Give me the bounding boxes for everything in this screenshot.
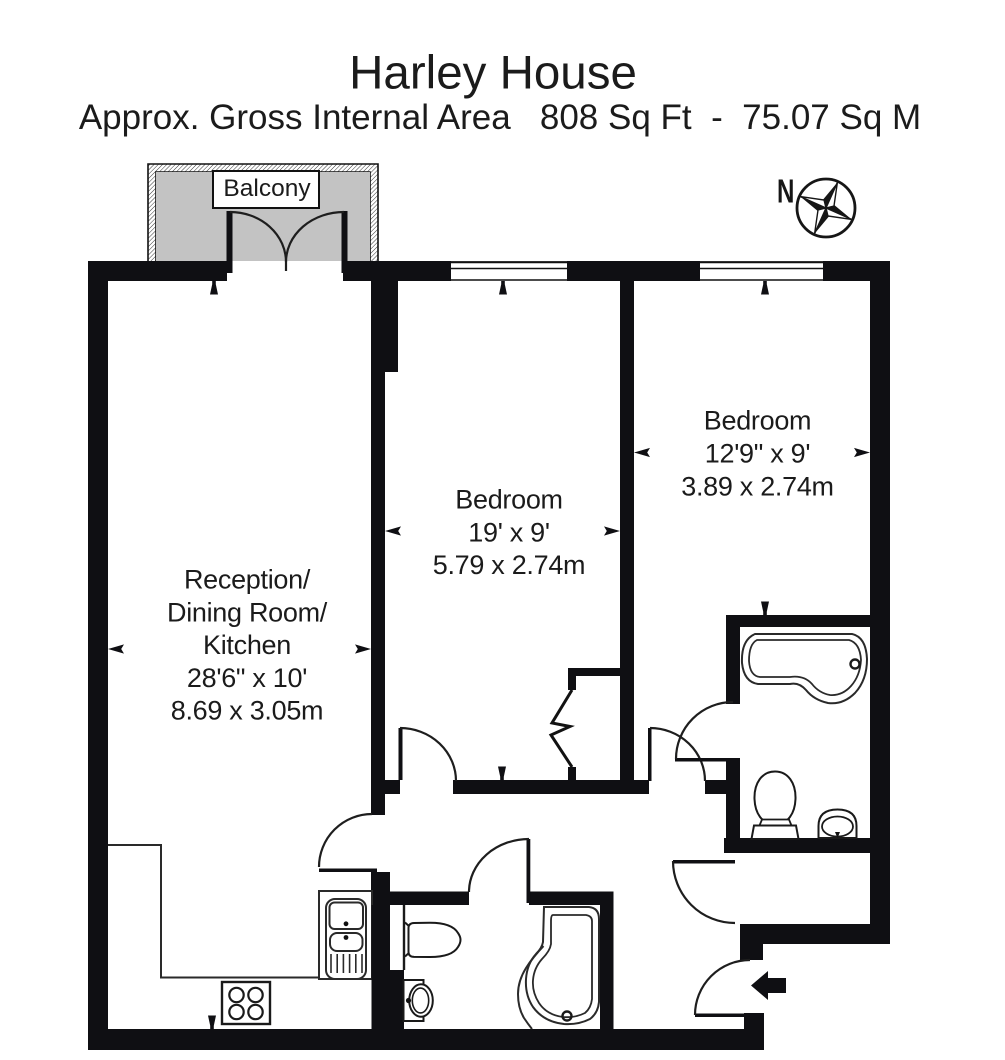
svg-text:Kitchen: Kitchen: [203, 630, 291, 660]
svg-text:12'9" x 9': 12'9" x 9': [705, 439, 810, 469]
svg-text:Bedroom: Bedroom: [455, 485, 562, 515]
svg-text:Reception/: Reception/: [184, 565, 311, 595]
svg-text:8.69 x 3.05m: 8.69 x 3.05m: [171, 696, 324, 726]
svg-text:Bedroom: Bedroom: [704, 406, 811, 436]
svg-text:19' x 9': 19' x 9': [468, 517, 549, 547]
svg-text:Harley House: Harley House: [349, 47, 637, 100]
svg-text:Approx. Gross Internal Area: Approx. Gross Internal Area 808 Sq Ft - …: [79, 98, 921, 137]
svg-text:28'6" x 10': 28'6" x 10': [187, 663, 307, 693]
svg-text:Dining Room/: Dining Room/: [167, 597, 328, 627]
svg-text:3.89 x 2.74m: 3.89 x 2.74m: [681, 471, 834, 501]
svg-text:Balcony: Balcony: [223, 175, 311, 202]
svg-text:5.79 x 2.74m: 5.79 x 2.74m: [433, 550, 586, 580]
svg-text:N: N: [777, 174, 794, 211]
